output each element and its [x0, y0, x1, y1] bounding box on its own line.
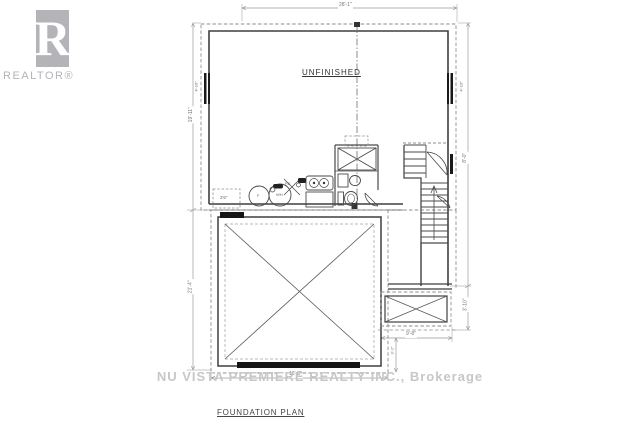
floor-drain-label: FD: [285, 181, 290, 186]
stair-door-swing: [427, 152, 447, 175]
laundry-tub-icon: [297, 176, 334, 190]
water-heater-label: WH: [276, 192, 283, 197]
mechanical-fixtures: [249, 176, 333, 207]
foundation-plan-drawing: [0, 0, 640, 429]
dimension-lines: [187, 4, 471, 381]
basement-outline: [201, 24, 456, 288]
dim-porch-offset: 3'-1": [389, 347, 394, 355]
staircase: [403, 143, 453, 243]
unexcavated-cross: [225, 224, 374, 359]
plan-title: FOUNDATION PLAN: [217, 408, 304, 417]
passage-walls: [388, 284, 452, 289]
window-markers: [204, 73, 453, 104]
room-label-unfinished: UNFINISHED: [302, 68, 361, 77]
dim-left-upper: 19'-11": [189, 106, 195, 123]
dim-porch-width: 9'-8": [405, 332, 417, 338]
garage-outline: [211, 210, 388, 373]
dim-right-lower: 3'-10": [464, 297, 470, 312]
garage-door-marker: [237, 362, 360, 368]
floorplan-screenshot: R REALTOR®: [0, 0, 640, 429]
dim-top-width: 28'-1": [338, 3, 353, 9]
furnace-label: F: [257, 193, 259, 198]
dim-left-window: 4'-10": [194, 81, 199, 91]
cold-cellar-label: 2'6": [220, 195, 227, 200]
porch-cross: [385, 296, 447, 322]
brokerage-watermark: NU VISTA PREMIERE REALTY INC., Brokerage: [150, 369, 490, 384]
beam-marker: [220, 212, 244, 218]
dim-right-window: 4'-10": [459, 81, 464, 91]
bathroom: [335, 136, 378, 206]
dim-right-upper: 8'-0": [463, 152, 469, 164]
porch-steps: [378, 292, 456, 330]
dim-left-lower: 21'-4": [189, 279, 195, 294]
center-line: [352, 22, 361, 209]
